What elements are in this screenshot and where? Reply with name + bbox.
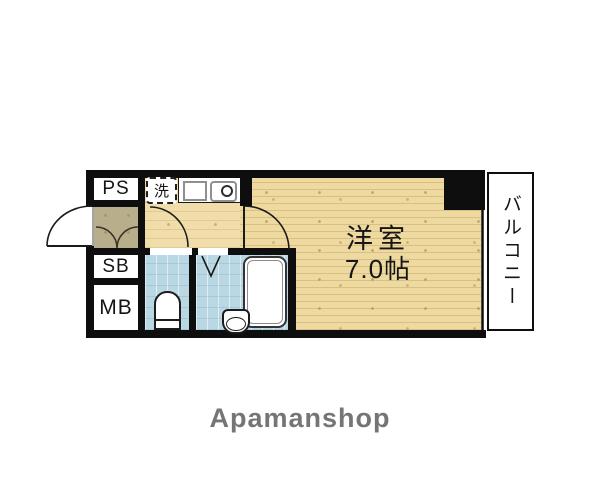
ps-label: PS xyxy=(94,178,138,200)
entrance-door-arc xyxy=(47,206,92,246)
floorplan-canvas: バルコニー 洗 PS SB MB 洋室 7.0帖 Apamanshop xyxy=(0,0,600,480)
room-door-arc xyxy=(244,206,289,250)
mb-label-text: MB xyxy=(99,296,133,320)
ps-label-text: PS xyxy=(102,178,129,200)
toilet-door-arc xyxy=(150,207,188,247)
room-size: 7.0帖 xyxy=(298,249,458,286)
sb-label: SB xyxy=(94,255,138,278)
apamanshop-logo: Apamanshop xyxy=(0,403,600,434)
shoebox-door-arcs xyxy=(96,227,138,248)
mb-label: MB xyxy=(94,285,138,330)
sb-label-text: SB xyxy=(102,256,129,278)
bath-folding-door-icon xyxy=(202,256,220,276)
